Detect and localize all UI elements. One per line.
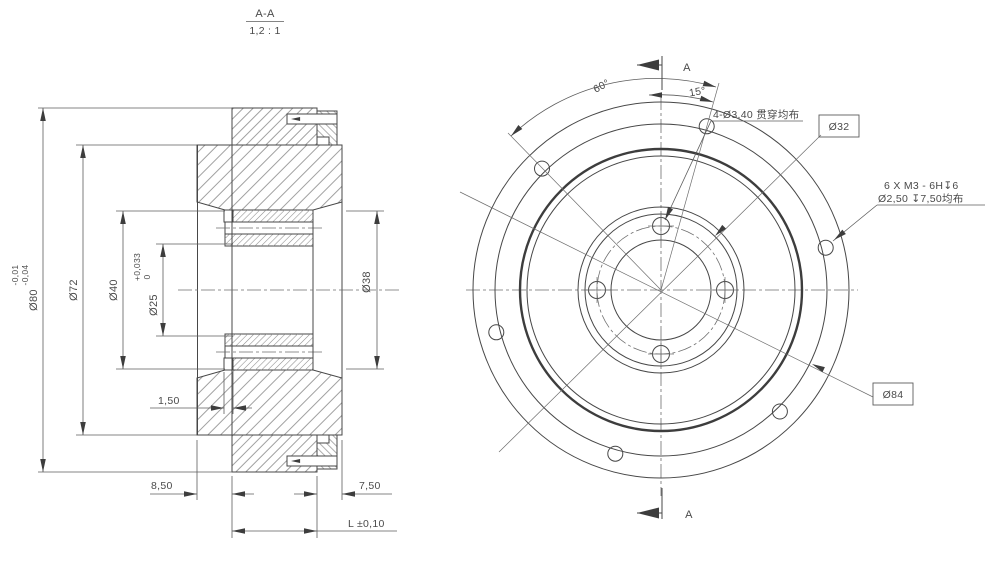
housing-lower-section (197, 370, 342, 435)
dim-d25-tol-upper: +0,033 (132, 253, 142, 281)
front-view: 60° 15° 4-Ø3,40 贯穿均布 Ø32 Ø84 6 X M3 - 6H… (460, 56, 985, 521)
section-view: Ø80 -0,01 -0,04 Ø72 Ø40 Ø25 +0,033 0 Ø38… (10, 108, 400, 538)
dim-d80-tol-upper: -0,01 (10, 265, 20, 286)
dim-step: 1,50 (158, 395, 180, 407)
upper-bearing-inner-race (225, 234, 313, 246)
through-holes-leader (665, 121, 711, 220)
through-holes-note: 4-Ø3,40 贯穿均布 (713, 108, 799, 121)
d32-label: Ø32 (829, 121, 850, 133)
top-cap-notch (317, 137, 329, 145)
engineering-drawing: A-A 1,2 : 1 (0, 0, 1000, 565)
dim-d72: Ø72 (68, 279, 80, 301)
dim-d80: Ø80 (28, 289, 40, 311)
dim-d25: Ø25 (148, 294, 160, 316)
drawing-svg: A-A 1,2 : 1 (0, 0, 1000, 565)
dim-right-offset: 7,50 (359, 480, 381, 492)
dim-left-offset: 8,50 (151, 480, 173, 492)
angle-spacing-label: 60° (591, 77, 611, 95)
section-title: A-A 1,2 : 1 (246, 8, 284, 37)
d84-label: Ø84 (883, 389, 904, 401)
housing-upper-section (197, 145, 342, 210)
dim-d38: Ø38 (361, 271, 373, 293)
dim-d25-tol-lower: 0 (142, 274, 152, 279)
dim-d40: Ø40 (108, 279, 120, 301)
section-title-label: A-A (255, 8, 275, 20)
section-title-scale: 1,2 : 1 (249, 25, 280, 37)
section-mark-bottom-label: A (685, 509, 693, 521)
dim-length: L ±0,10 (348, 518, 385, 530)
lower-bearing-inner-race (225, 334, 313, 346)
section-mark-top-label: A (683, 62, 691, 74)
bottom-cap-notch (317, 435, 329, 443)
thread-note-line1: 6 X M3 - 6H↧6 (884, 180, 959, 192)
dim-d80-tol-lower: -0,04 (20, 265, 30, 286)
angle-60-arc (511, 78, 716, 136)
thread-note-line2: Ø2,50 ↧7,50均布 (878, 193, 964, 205)
upper-bearing-outer-race (225, 210, 313, 222)
lower-bearing-outer-race (225, 358, 313, 370)
